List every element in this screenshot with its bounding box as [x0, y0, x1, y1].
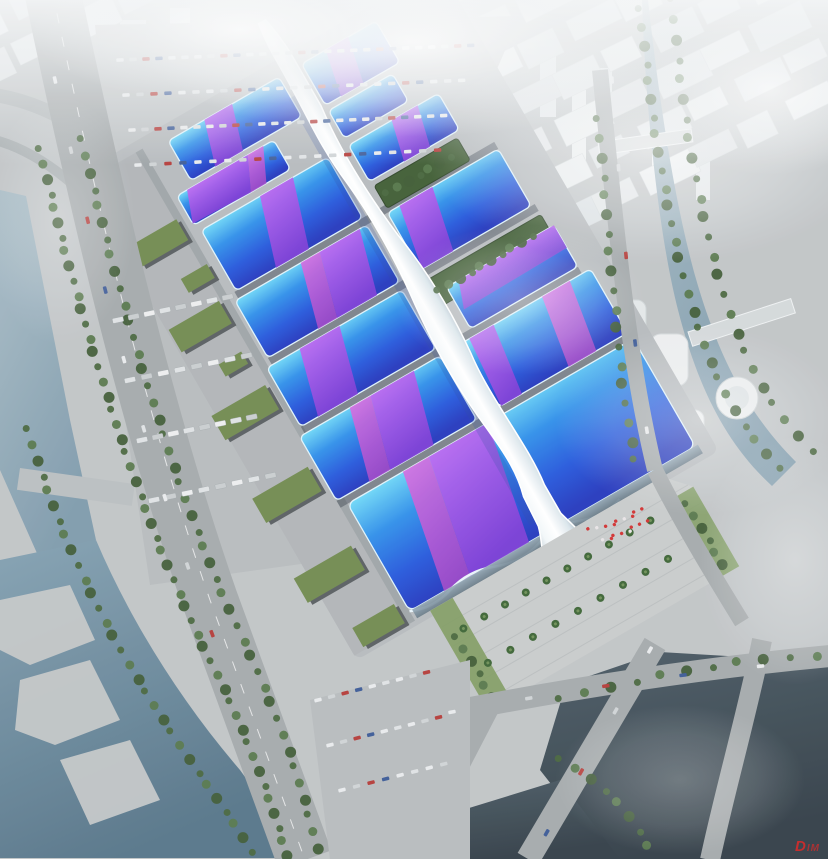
- haze-veil: [0, 0, 828, 859]
- fog-overlay: [0, 0, 828, 859]
- aerial-rendering-exhibition-center: D IM: [0, 0, 828, 859]
- rendering-canvas: [0, 0, 828, 859]
- watermark-logo: D: [795, 839, 806, 854]
- watermark: D IM: [795, 839, 820, 854]
- watermark-text: IM: [807, 844, 820, 854]
